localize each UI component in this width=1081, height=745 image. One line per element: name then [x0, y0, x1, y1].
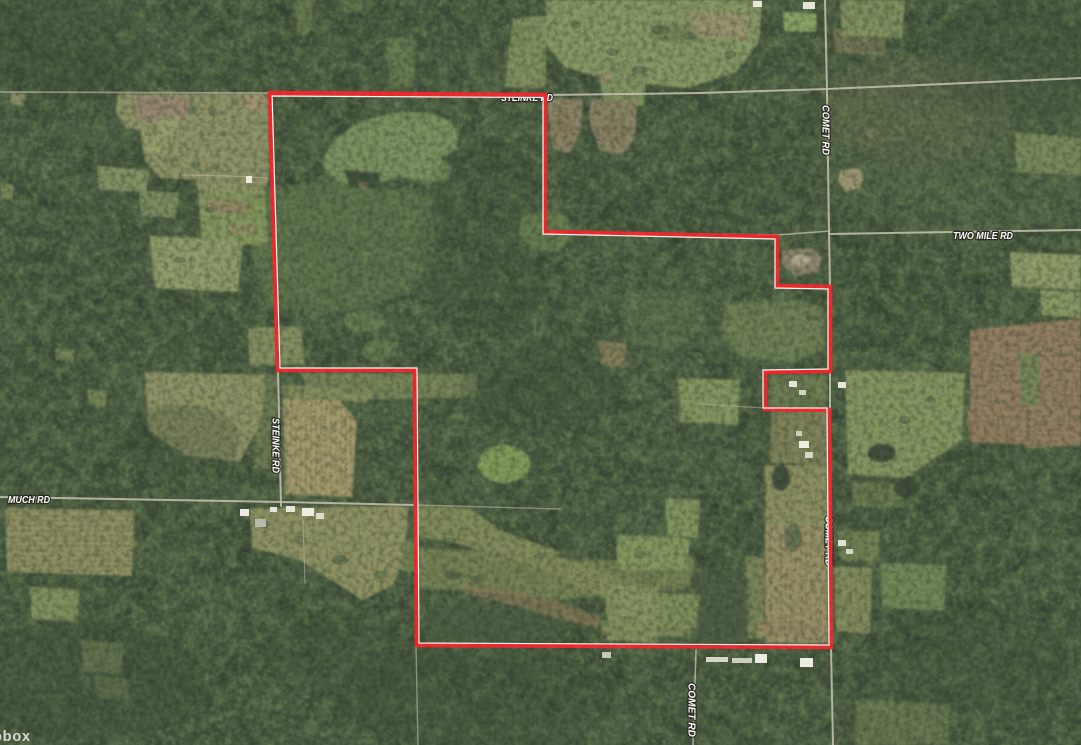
svg-text:obox: obox — [0, 729, 31, 745]
